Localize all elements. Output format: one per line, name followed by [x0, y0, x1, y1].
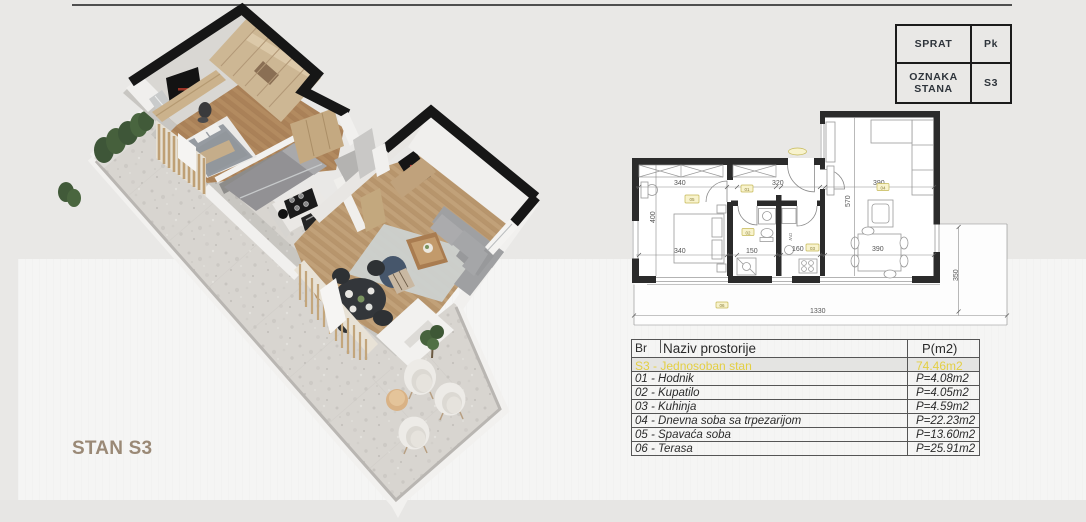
- svg-text:06: 06: [719, 303, 725, 308]
- svg-text:340: 340: [674, 248, 686, 255]
- svg-text:03: 03: [810, 246, 816, 251]
- svg-text:570: 570: [845, 195, 852, 207]
- svg-text:04: 04: [880, 186, 886, 191]
- svg-text:01: 01: [744, 187, 750, 192]
- svg-text:350: 350: [953, 269, 960, 281]
- svg-text:DW: DW: [788, 233, 793, 241]
- svg-text:05: 05: [689, 197, 695, 202]
- svg-text:320: 320: [772, 180, 784, 187]
- svg-text:1330: 1330: [810, 308, 826, 315]
- svg-text:150: 150: [746, 248, 758, 255]
- svg-text:160: 160: [792, 246, 804, 253]
- svg-text:400: 400: [650, 211, 657, 223]
- svg-text:02: 02: [745, 231, 751, 236]
- svg-text:390: 390: [872, 246, 884, 253]
- svg-text:340: 340: [674, 180, 686, 187]
